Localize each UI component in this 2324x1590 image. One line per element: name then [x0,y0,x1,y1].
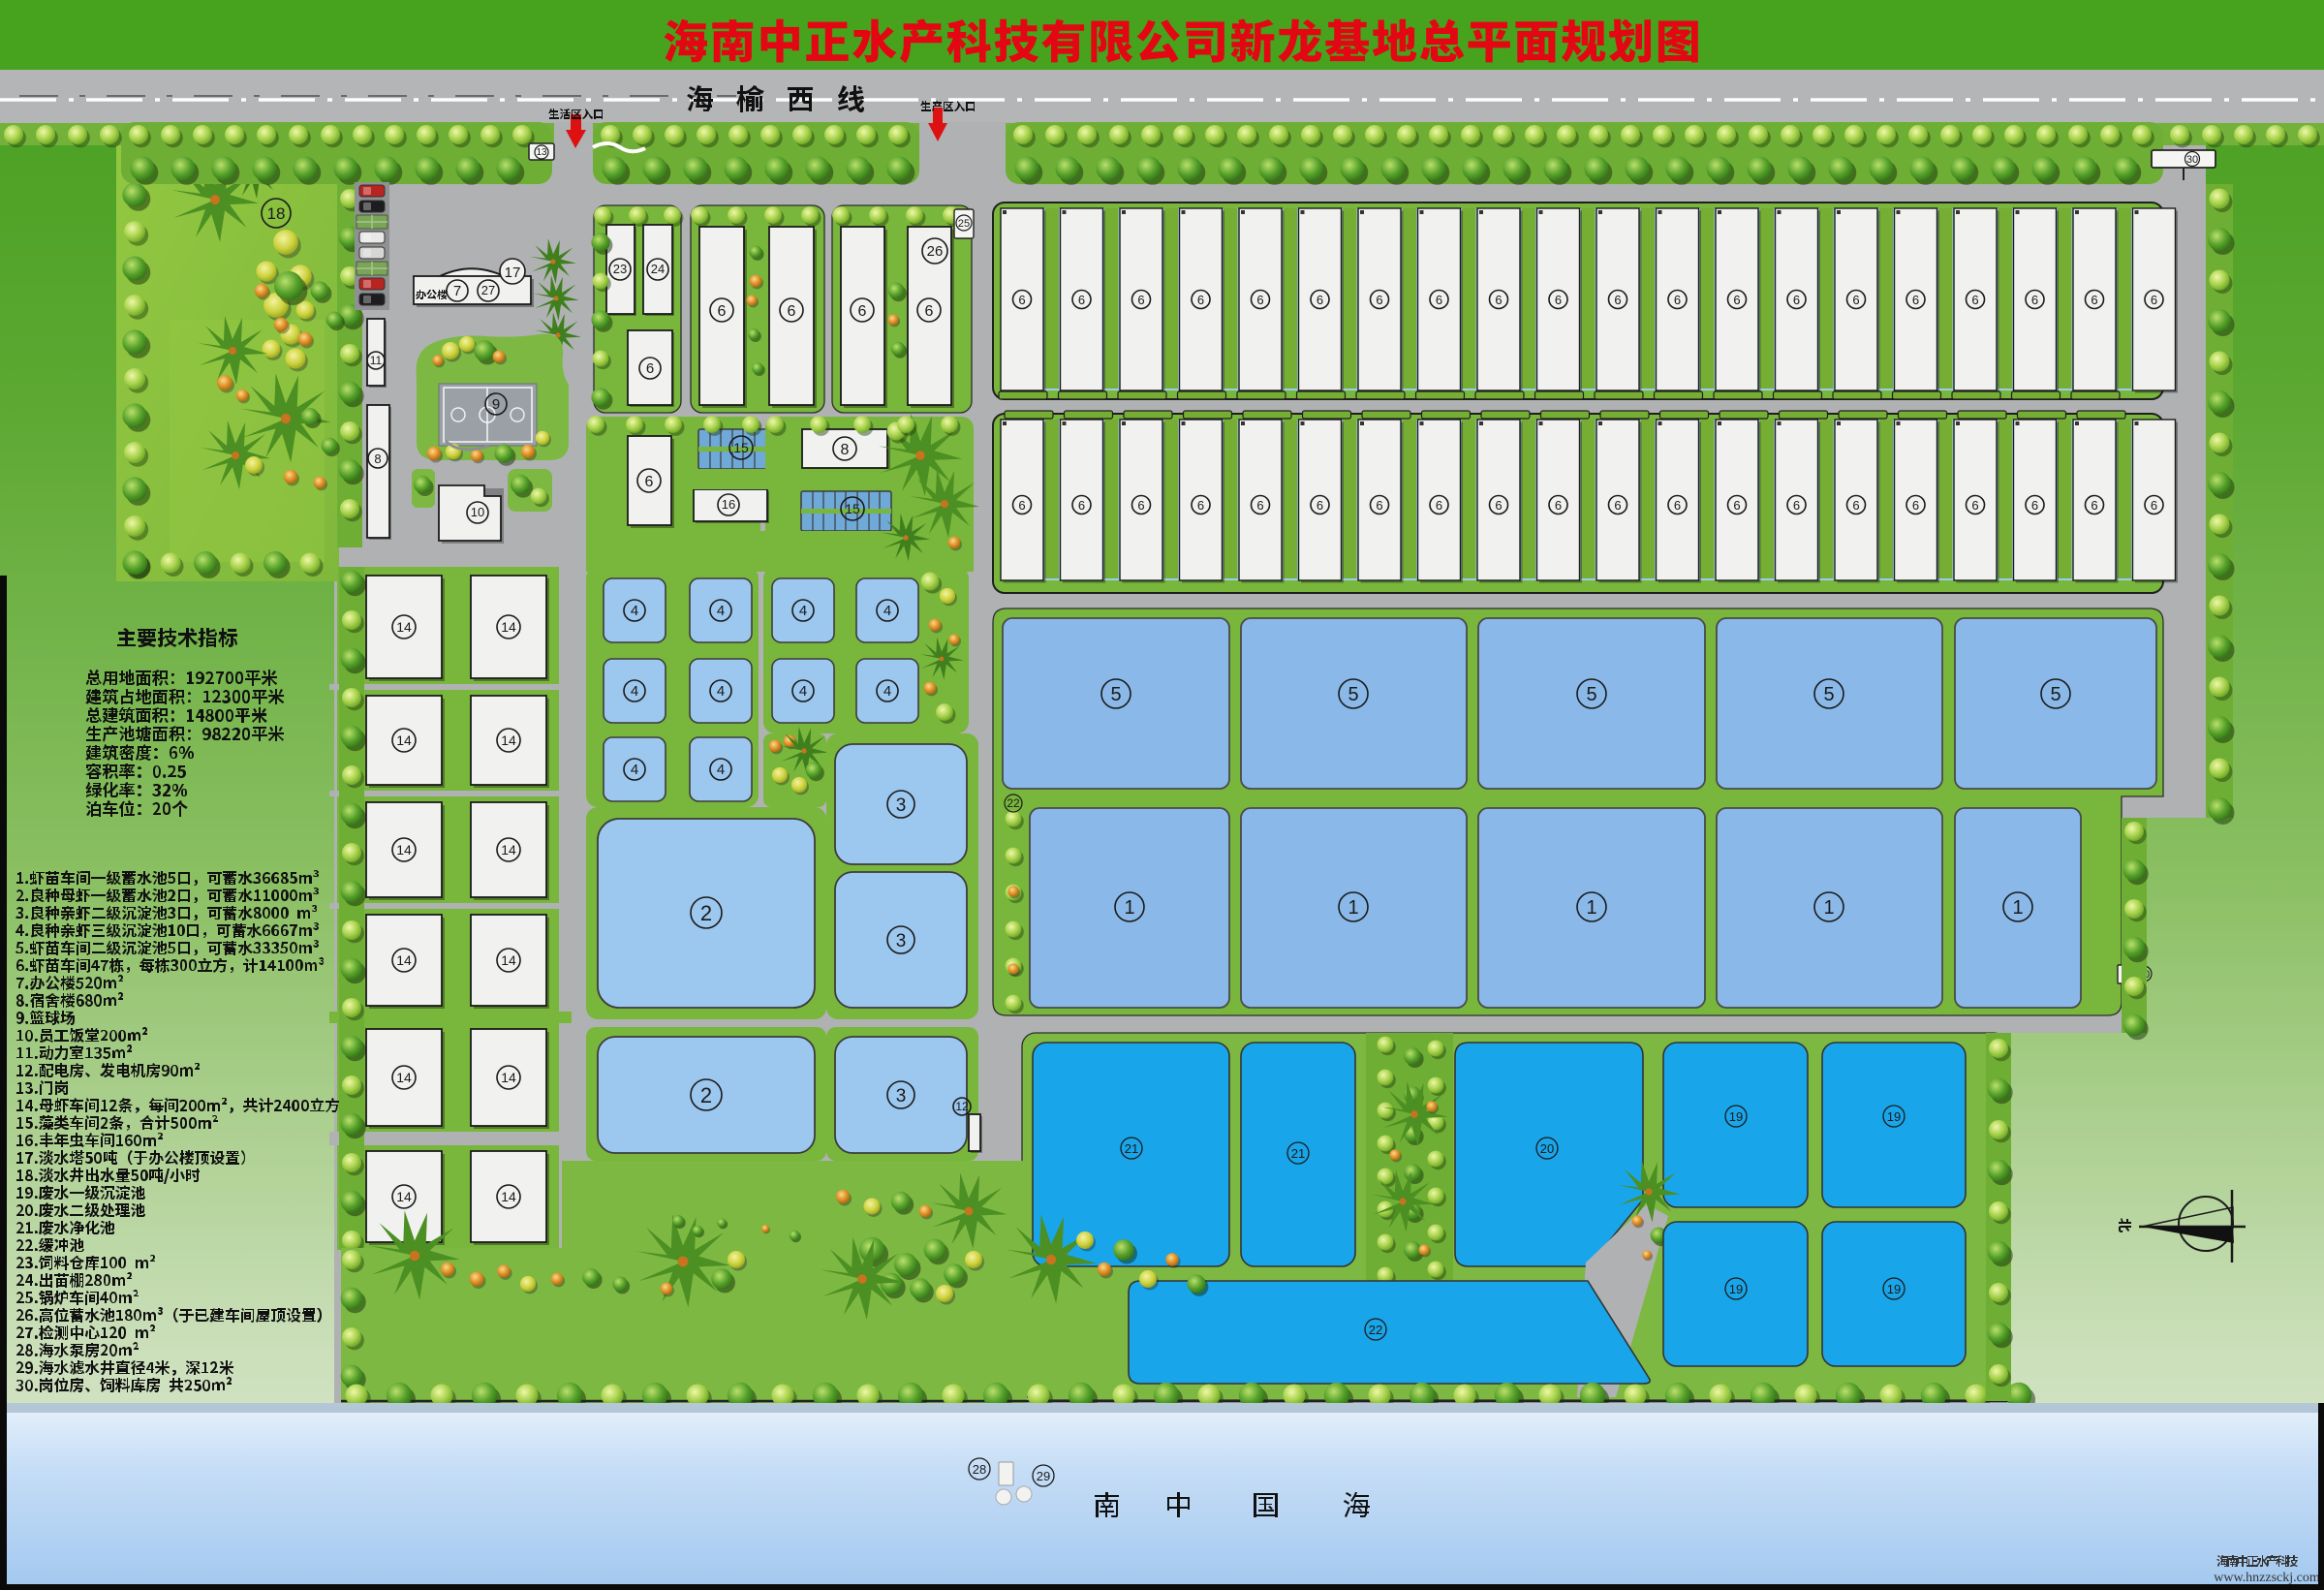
svg-text:5: 5 [1586,684,1596,705]
svg-text:5: 5 [2050,684,2061,705]
svg-text:13: 13 [536,147,547,158]
svg-text:6: 6 [1436,293,1442,307]
svg-text:6: 6 [1317,293,1323,307]
svg-text:6: 6 [1674,293,1681,307]
svg-text:4: 4 [717,762,725,778]
svg-text:19: 19 [1729,1109,1743,1124]
svg-text:6: 6 [1317,498,1323,513]
svg-text:29: 29 [1037,1469,1050,1483]
svg-text:15: 15 [733,440,749,455]
svg-text:6: 6 [1912,293,1919,307]
svg-text:4: 4 [799,603,807,619]
svg-text:3: 3 [896,795,907,816]
svg-text:4: 4 [883,683,891,700]
svg-text:6: 6 [1852,293,1859,307]
svg-text:6: 6 [1078,498,1085,513]
svg-text:6: 6 [1555,293,1562,307]
svg-text:6: 6 [1376,293,1382,307]
svg-text:30: 30 [2186,154,2198,166]
svg-text:14: 14 [396,733,412,748]
svg-text:14: 14 [501,842,516,857]
svg-text:24: 24 [651,262,665,276]
svg-text:1: 1 [1348,897,1358,919]
svg-text:27: 27 [481,283,495,297]
svg-text:6: 6 [1018,293,1025,307]
svg-text:14: 14 [396,619,412,635]
svg-text:6: 6 [2091,293,2097,307]
svg-text:23: 23 [613,262,627,276]
svg-text:22: 22 [1007,796,1020,810]
svg-text:6: 6 [1137,293,1144,307]
svg-text:6: 6 [1852,498,1859,513]
svg-text:6: 6 [1614,498,1621,513]
svg-text:6: 6 [1256,293,1263,307]
svg-text:6: 6 [2091,498,2097,513]
svg-text:14: 14 [501,1189,516,1204]
svg-text:6: 6 [2151,498,2157,513]
svg-text:2: 2 [700,1083,712,1107]
svg-text:6: 6 [925,303,934,320]
svg-text:1: 1 [1124,897,1134,919]
svg-text:2: 2 [700,901,712,925]
svg-text:3: 3 [896,931,907,951]
svg-text:6: 6 [2151,293,2157,307]
svg-text:6: 6 [1971,293,1978,307]
svg-text:1: 1 [2012,897,2023,919]
svg-text:5: 5 [1110,684,1121,705]
svg-text:www.hnzzsckj.com: www.hnzzsckj.com [2214,1571,2320,1585]
svg-text:14: 14 [501,952,516,968]
svg-text:12: 12 [955,1100,969,1113]
svg-text:10: 10 [471,505,484,519]
svg-text:14: 14 [396,952,412,968]
svg-text:19: 19 [1729,1282,1743,1296]
svg-text:11: 11 [370,354,383,367]
svg-text:4: 4 [717,603,725,619]
svg-text:5: 5 [1823,684,1834,705]
svg-text:6: 6 [1137,498,1144,513]
svg-text:6: 6 [1555,498,1562,513]
svg-text:1: 1 [1586,897,1596,919]
svg-text:7: 7 [453,283,461,299]
svg-text:6: 6 [788,303,796,320]
svg-text:6: 6 [1078,293,1085,307]
svg-text:28: 28 [973,1462,986,1477]
svg-text:21: 21 [1291,1146,1305,1161]
svg-text:6: 6 [1495,498,1502,513]
svg-text:15: 15 [845,501,860,516]
svg-text:6: 6 [1436,498,1442,513]
svg-text:26: 26 [927,243,944,260]
svg-text:6: 6 [2031,498,2038,513]
svg-text:6: 6 [1495,293,1502,307]
svg-text:16: 16 [722,497,735,512]
svg-text:18: 18 [267,204,286,223]
svg-text:6: 6 [1674,498,1681,513]
svg-text:6: 6 [1256,498,1263,513]
svg-text:4: 4 [799,683,807,700]
svg-text:6: 6 [1197,498,1204,513]
svg-text:1: 1 [1823,897,1834,919]
svg-text:14: 14 [396,1189,412,1204]
svg-text:6: 6 [858,303,867,320]
svg-text:6: 6 [2031,293,2038,307]
svg-text:25: 25 [958,218,970,230]
svg-text:4: 4 [883,603,891,619]
svg-text:4: 4 [631,762,638,778]
svg-text:6: 6 [1733,498,1740,513]
svg-text:9: 9 [492,396,500,413]
svg-text:5: 5 [1348,684,1358,705]
svg-text:17: 17 [505,265,521,281]
svg-text:14: 14 [501,619,516,635]
svg-text:4: 4 [717,683,725,700]
svg-text:6: 6 [645,474,654,490]
svg-text:19: 19 [1887,1282,1901,1296]
svg-text:6: 6 [1614,293,1621,307]
svg-text:8: 8 [841,442,850,458]
svg-text:14: 14 [396,1070,412,1085]
svg-text:6: 6 [1733,293,1740,307]
svg-text:19: 19 [1887,1109,1901,1124]
svg-text:6: 6 [646,360,654,377]
svg-text:20: 20 [1540,1141,1554,1156]
svg-text:3: 3 [896,1086,907,1107]
svg-text:6: 6 [1912,498,1919,513]
svg-text:14: 14 [501,733,516,748]
svg-text:14: 14 [396,842,412,857]
svg-text:4: 4 [631,683,638,700]
svg-text:6: 6 [718,303,727,320]
svg-text:22: 22 [1369,1323,1382,1337]
svg-text:6: 6 [1971,498,1978,513]
svg-text:6: 6 [1376,498,1382,513]
svg-text:4: 4 [631,603,638,619]
svg-text:6: 6 [1018,498,1025,513]
svg-text:14: 14 [501,1070,516,1085]
svg-text:6: 6 [1793,293,1800,307]
svg-text:21: 21 [1125,1141,1138,1156]
svg-text:6: 6 [1793,498,1800,513]
svg-text:8: 8 [374,452,381,466]
svg-text:6: 6 [1197,293,1204,307]
